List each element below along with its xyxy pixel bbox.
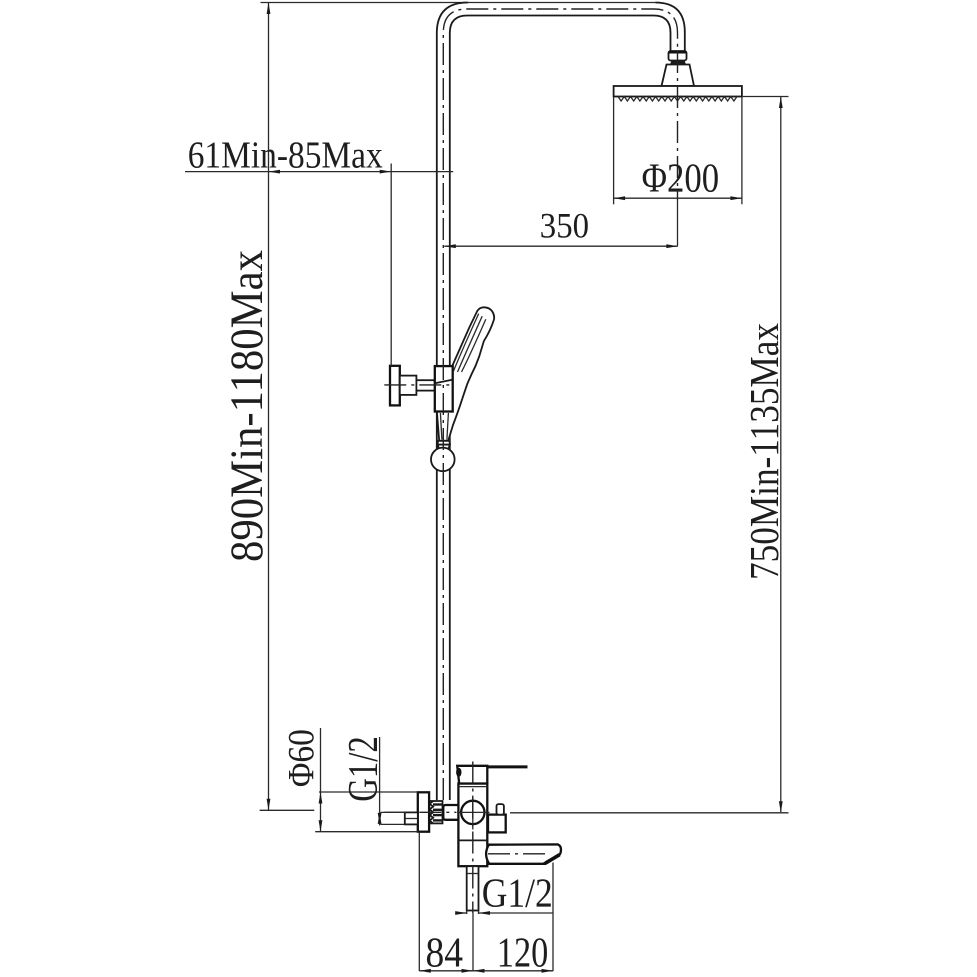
svg-text:750Min-1135Max: 750Min-1135Max — [741, 323, 787, 580]
svg-text:350: 350 — [540, 206, 589, 246]
svg-text:G1/2: G1/2 — [341, 736, 387, 802]
svg-text:G1/2: G1/2 — [482, 870, 553, 916]
svg-text:890Min-1180Max: 890Min-1180Max — [221, 250, 273, 562]
svg-text:61Min-85Max: 61Min-85Max — [188, 135, 383, 177]
svg-text:120: 120 — [497, 931, 549, 977]
svg-text:84: 84 — [426, 931, 464, 977]
svg-text:Φ60: Φ60 — [282, 729, 323, 787]
svg-text:Φ200: Φ200 — [642, 154, 720, 200]
